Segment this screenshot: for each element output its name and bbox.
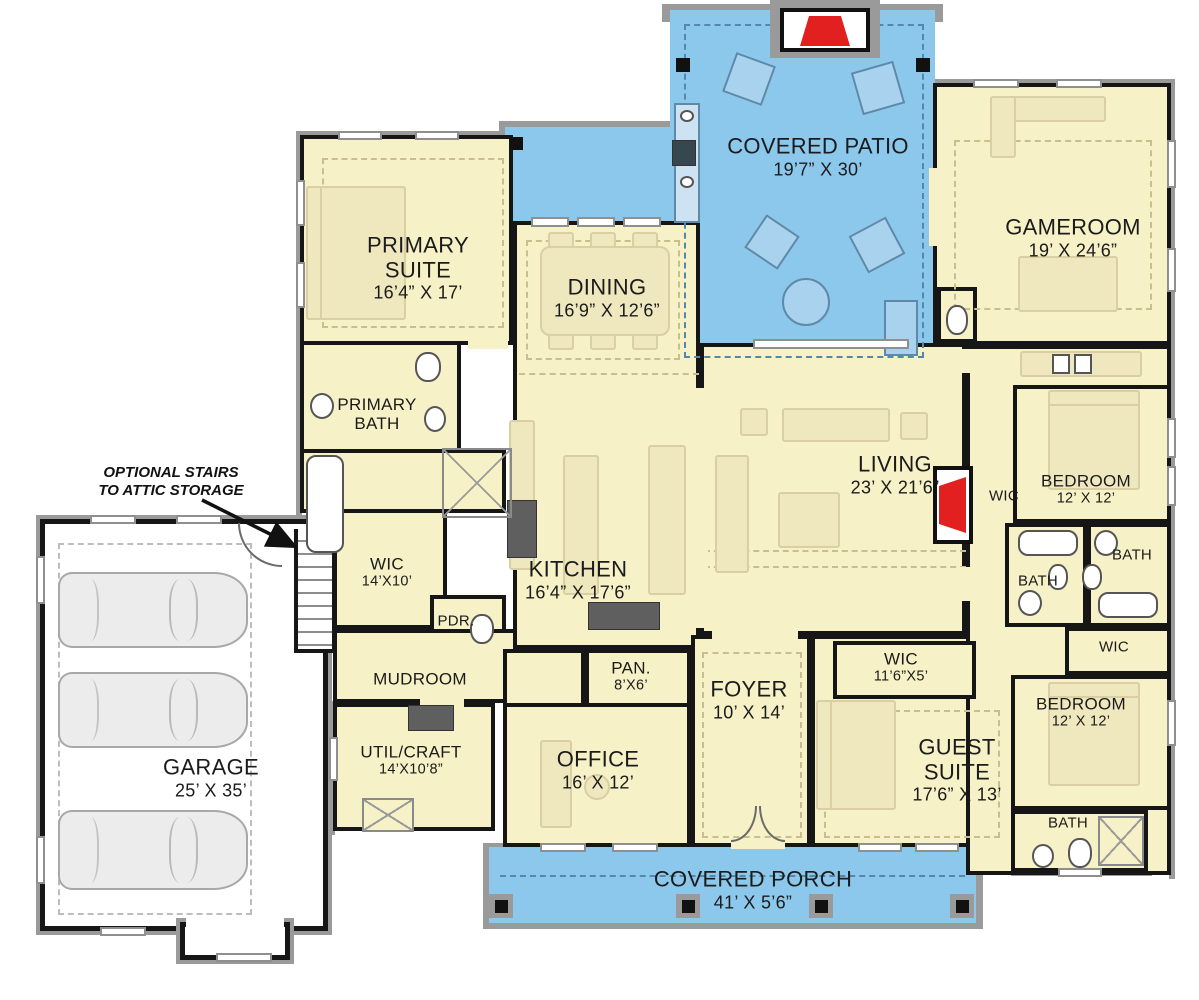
washer-dryer-icon — [362, 798, 414, 832]
window — [100, 927, 146, 936]
label-gameroom: GAMEROOM 19’ X 24’6” — [1005, 216, 1141, 261]
label-bedroom-top: BEDROOM 12’ X 12’ — [1041, 471, 1131, 506]
patio-sliding-door — [753, 339, 909, 349]
car-2 — [58, 672, 248, 748]
opening-living-foyer — [712, 627, 798, 643]
window — [296, 180, 305, 226]
bedroom-top-headboard — [1048, 390, 1140, 406]
label-bath-right: BATH — [1112, 548, 1152, 565]
toilet-icon — [1082, 564, 1102, 590]
window — [296, 262, 305, 308]
sink-icon — [1052, 354, 1070, 374]
window — [915, 843, 959, 852]
toilet-icon — [1068, 838, 1092, 868]
window — [36, 556, 45, 604]
toilet-icon — [415, 352, 441, 382]
window — [1167, 140, 1176, 188]
living-sofa — [782, 408, 890, 442]
game-table — [1018, 256, 1118, 312]
annotation-arrow — [192, 490, 312, 562]
opening-gameroom-patio — [929, 168, 943, 246]
window — [36, 836, 45, 884]
label-bath-left: BATH — [1018, 574, 1058, 591]
opening-kitchen-living — [692, 388, 708, 628]
dining-chair — [632, 334, 658, 350]
window — [338, 131, 382, 140]
window — [1167, 418, 1176, 458]
label-bedroom-bottom: BEDROOM 12’ X 12’ — [1036, 694, 1126, 729]
label-wic-guest: WIC 11’6”X5’ — [874, 649, 929, 684]
label-living: LIVING 23’ X 21’6” — [851, 453, 940, 498]
living-sofa — [715, 455, 749, 573]
primary-bed-headboard — [306, 186, 322, 320]
label-wic-primary: WIC 14’X10’ — [362, 554, 412, 589]
label-wic-bedroom: WIC — [1099, 640, 1129, 657]
dining-chair — [590, 232, 616, 248]
label-office: OFFICE 16’ X 12’ — [557, 748, 639, 793]
window — [1167, 700, 1176, 746]
bath-right-tub — [1098, 592, 1158, 618]
label-kitchen: KITCHEN 16’4” X 17’6” — [525, 558, 631, 603]
window — [858, 843, 902, 852]
guest-bed-headboard — [816, 700, 832, 810]
dining-chair — [590, 334, 616, 350]
patio-post — [676, 58, 690, 72]
hall-kitchen — [503, 649, 585, 707]
window — [577, 217, 615, 227]
toilet-icon — [946, 305, 968, 335]
label-garage: GARAGE 25’ X 35’ — [163, 756, 259, 801]
label-wic-living: WIC — [989, 489, 1019, 506]
craft-appliance-icon — [408, 705, 454, 731]
coffee-table — [778, 492, 840, 548]
label-pantry: PAN. 8’X6’ — [611, 658, 651, 693]
window — [415, 131, 459, 140]
car-3 — [58, 810, 248, 890]
patio-post — [510, 137, 523, 150]
porch-post — [495, 900, 508, 913]
sink-icon — [1018, 590, 1042, 616]
window — [531, 217, 569, 227]
kitchen-island — [648, 445, 686, 595]
floor-plan: COVERED PATIO 19’7” X 30’ GAMEROOM 19’ X… — [0, 0, 1199, 1000]
opening-suite-bath — [468, 337, 508, 349]
dining-chair — [548, 334, 574, 350]
car-1 — [58, 572, 248, 648]
dining-chair — [548, 232, 574, 248]
dining-kitchen-divider — [519, 373, 699, 375]
opening-living-hall-top — [958, 349, 974, 373]
living-fireplace-firebox — [939, 477, 966, 533]
living-chair — [900, 412, 928, 440]
label-dining: DINING 16’9” X 12’6” — [554, 276, 660, 321]
window — [612, 843, 658, 852]
window — [90, 515, 136, 524]
opening-living-hall-bottom — [958, 567, 974, 601]
grill-icon — [672, 140, 696, 166]
label-primary-suite: PRIMARY SUITE 16’4” X 17’ — [343, 233, 493, 302]
label-covered-patio: COVERED PATIO 19’7” X 30’ — [727, 135, 909, 180]
gameroom-sofa — [990, 96, 1016, 158]
label-guest-suite: GUEST SUITE 17’6” X 13’ — [892, 735, 1022, 804]
window — [329, 737, 338, 781]
label-bath-bottom: BATH — [1048, 816, 1088, 833]
label-mudroom: MUDROOM — [373, 669, 467, 688]
dining-chair — [632, 232, 658, 248]
window — [540, 843, 586, 852]
window — [1167, 248, 1176, 292]
window — [1056, 79, 1102, 88]
label-covered-porch: COVERED PORCH 41’ X 5’6” — [654, 868, 852, 913]
label-powder: PDR. — [437, 614, 474, 631]
bath-left-tub — [1018, 530, 1078, 556]
primary-shower — [442, 448, 512, 518]
patio-side-strip — [505, 127, 672, 223]
label-util-craft: UTIL/CRAFT 14’X10’8” — [360, 742, 461, 777]
porch-post — [956, 900, 969, 913]
living-chair — [740, 408, 768, 436]
window — [623, 217, 661, 227]
patio-table — [782, 278, 830, 326]
sink-icon — [1032, 844, 1054, 868]
patio-post — [916, 58, 930, 72]
window — [1058, 868, 1102, 877]
window — [216, 953, 272, 962]
label-foyer: FOYER 10’ X 14’ — [710, 678, 787, 723]
window — [1167, 466, 1176, 506]
kitchen-appliance-icon — [588, 602, 660, 630]
label-primary-bath: PRIMARY BATH — [322, 395, 432, 433]
shower-icon — [1098, 816, 1144, 866]
outdoor-sink-icon — [680, 176, 694, 188]
outdoor-sink-icon — [680, 110, 694, 122]
sink-icon — [1074, 354, 1092, 374]
window — [973, 79, 1019, 88]
